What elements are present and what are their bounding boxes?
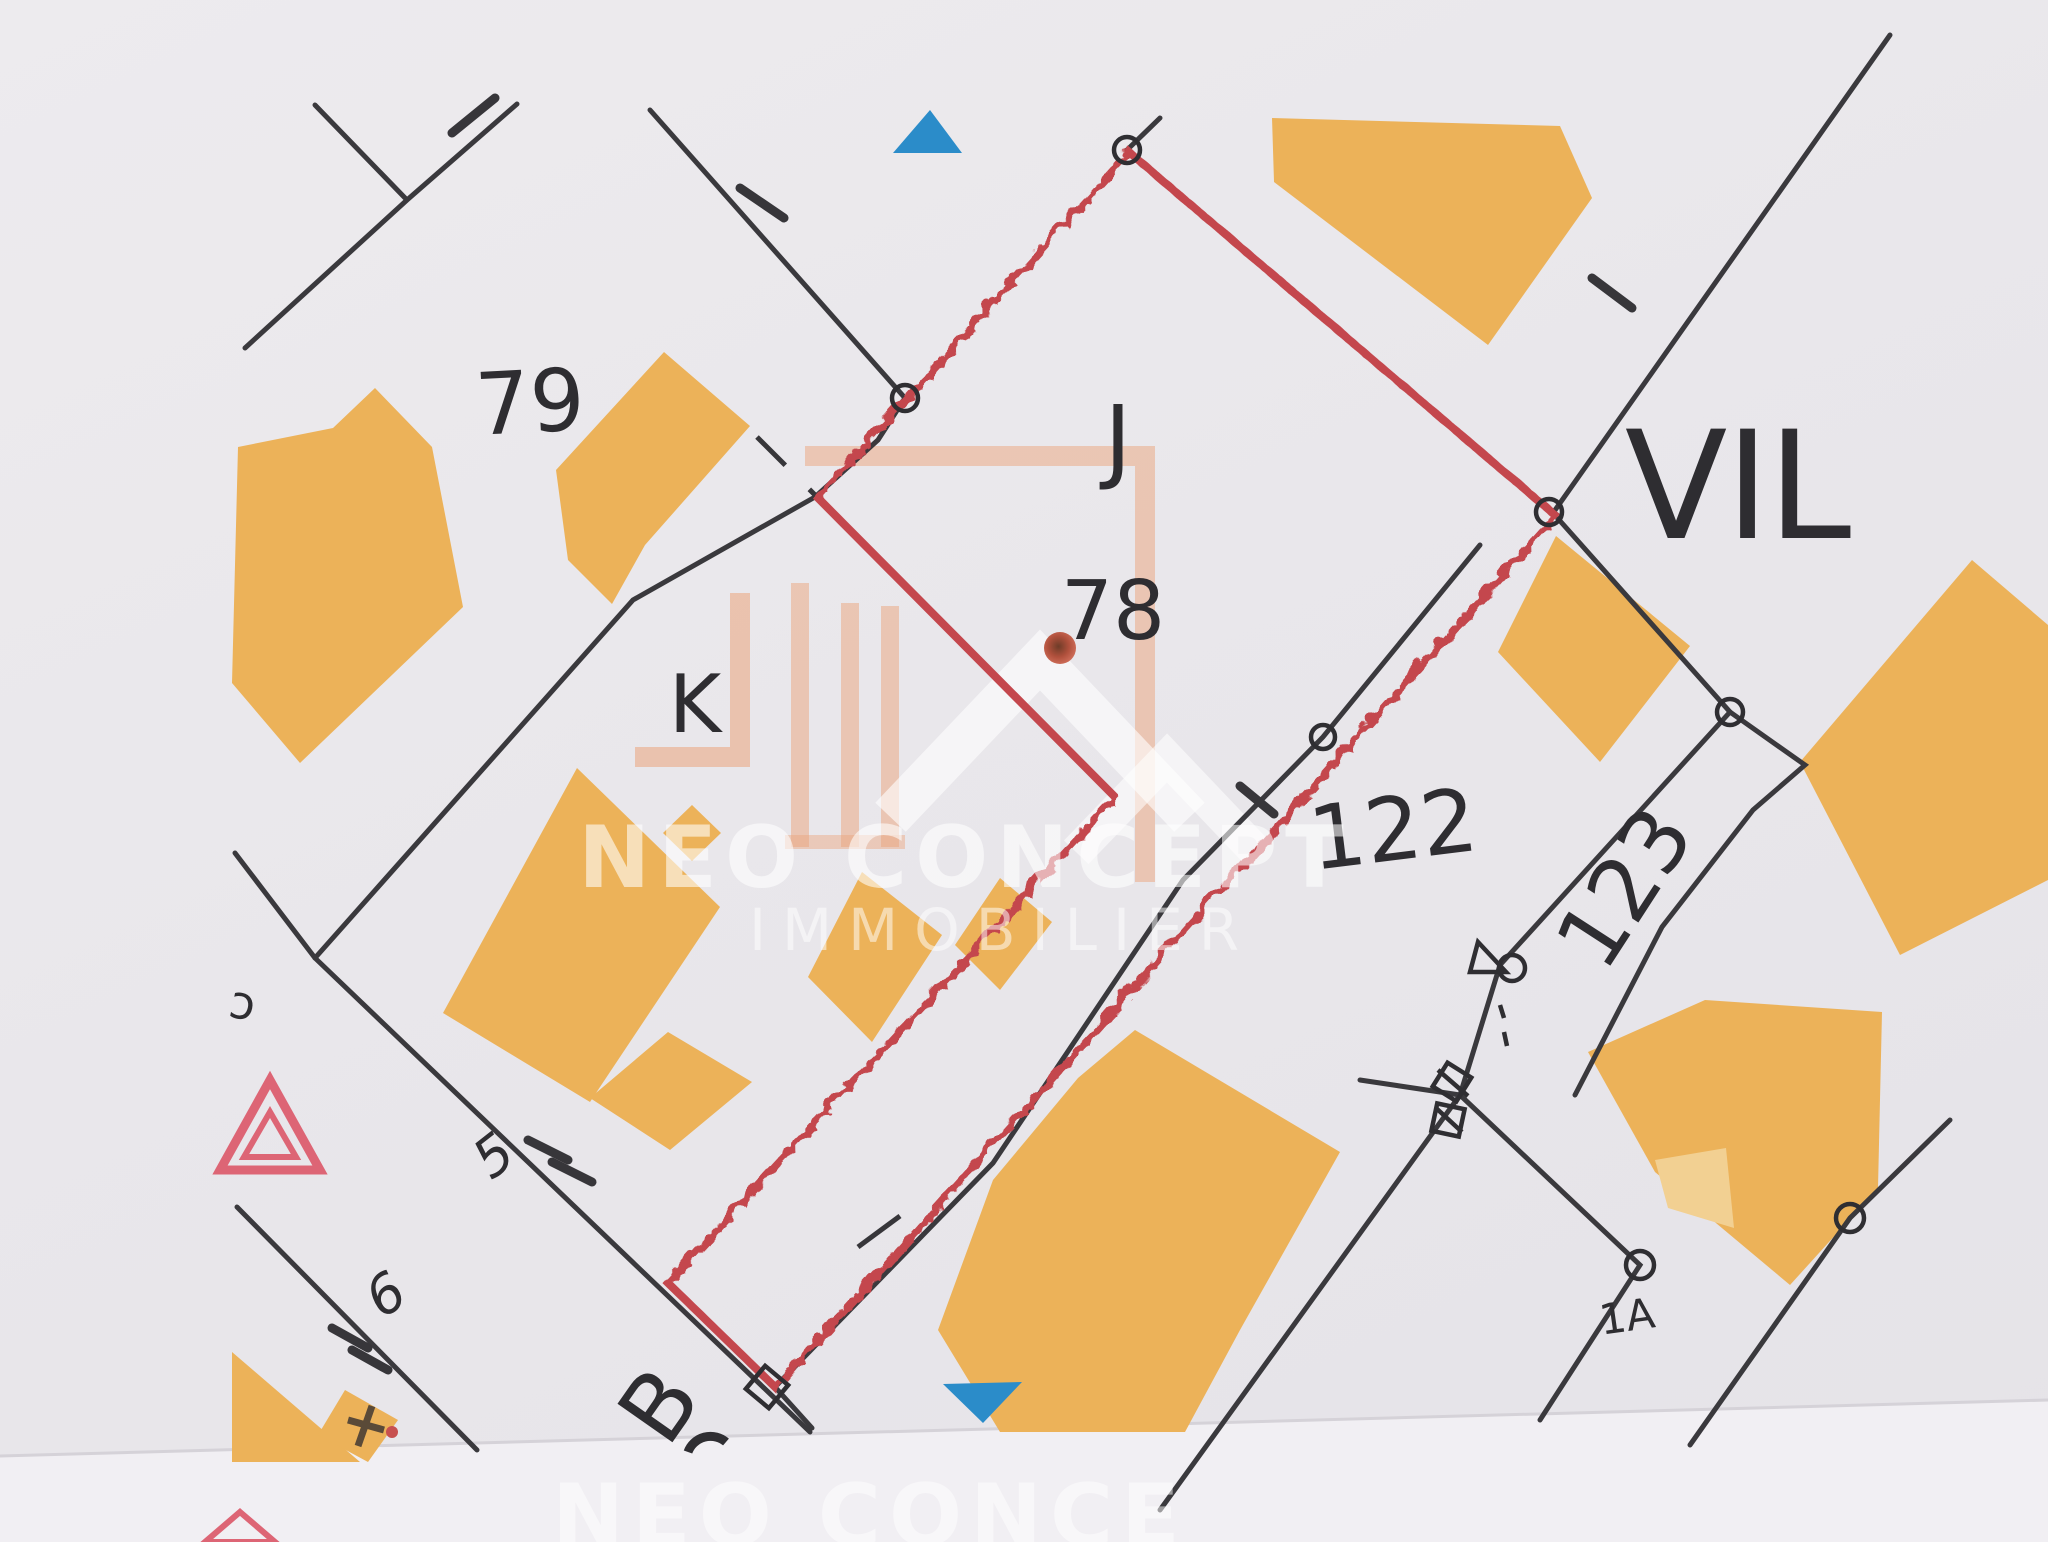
pink-triangle-symbol-icon [220, 1080, 320, 1170]
watermark-tagline: IMMOBILIER [749, 901, 1255, 959]
parcel-label-K: K [669, 665, 721, 745]
watermark-name: NEO CONCEPT [578, 815, 1352, 901]
building [938, 1030, 1340, 1432]
street-name-vil: VIL [1625, 412, 1849, 562]
building-light-annex [1655, 1148, 1734, 1228]
blue-triangle-up-icon [893, 110, 962, 153]
building [556, 352, 750, 604]
watermark-partial-bottom: NEO CONCE [552, 1473, 1188, 1542]
boundary-line [1460, 1095, 1640, 1420]
tick [552, 1162, 592, 1182]
parcel-label-78: 78 [1061, 571, 1165, 653]
map-canvas [0, 0, 2048, 1542]
cadastral-map: 79 J 78 K 122 123 1A 5 6 ɔ VIL B NEO CON… [0, 0, 2048, 1542]
parcel-label-1A: 1A [1597, 1292, 1658, 1341]
building [232, 388, 463, 763]
boundary-line [245, 104, 517, 348]
tick [1592, 278, 1632, 308]
vertex-triangle [1470, 942, 1506, 972]
boundary-stub [1127, 118, 1160, 150]
tick [528, 1140, 568, 1160]
tick [740, 188, 784, 218]
small-red-dot [386, 1426, 398, 1438]
parcel-label-J: J [1104, 394, 1131, 486]
dash-segment [858, 1216, 900, 1247]
building [1800, 560, 2048, 955]
building [1588, 1000, 1882, 1285]
parcel-label-79: 79 [473, 357, 587, 449]
vertex-dash-dot [1500, 1005, 1507, 1046]
